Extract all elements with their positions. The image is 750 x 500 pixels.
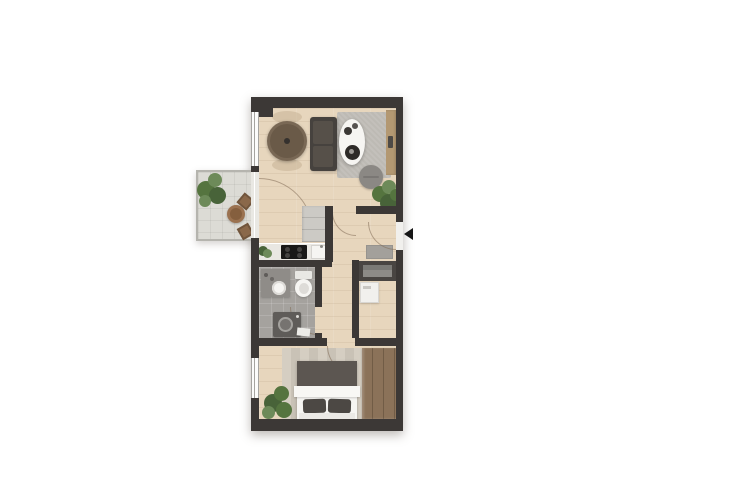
plant-foliage bbox=[263, 249, 272, 258]
balcony-plant bbox=[197, 173, 229, 209]
sideboard-decor bbox=[388, 136, 393, 148]
sofa-cushion bbox=[313, 121, 333, 144]
closet-shelf bbox=[363, 265, 392, 277]
wall bbox=[251, 260, 332, 267]
living-room-window bbox=[251, 112, 259, 166]
burner bbox=[297, 253, 302, 258]
toilet-seat bbox=[299, 283, 309, 294]
bed-pillow bbox=[328, 399, 351, 414]
coffee-table-bowl bbox=[344, 127, 352, 135]
appliance-detail bbox=[363, 286, 371, 289]
vanity-accessory bbox=[264, 273, 268, 277]
dining-table-center bbox=[284, 138, 290, 144]
bedroom-plant bbox=[262, 386, 294, 422]
bedroom-wardrobe bbox=[362, 348, 396, 419]
pouf-crease bbox=[363, 176, 379, 178]
dining-table bbox=[267, 121, 307, 161]
wall bbox=[325, 206, 333, 262]
storage-appliance bbox=[360, 282, 379, 303]
coffee-table-tray bbox=[345, 145, 360, 160]
wall bbox=[315, 267, 322, 307]
balcony-table bbox=[227, 205, 245, 223]
bed-pillow bbox=[303, 399, 326, 414]
vanity-accessory bbox=[270, 277, 274, 281]
wall bbox=[251, 398, 259, 422]
plant-foliage bbox=[262, 406, 275, 419]
kitchen-tall-cabinet bbox=[302, 206, 326, 242]
balcony-sliding-door bbox=[251, 172, 259, 238]
bed bbox=[297, 361, 357, 420]
plant-foliage bbox=[276, 402, 292, 418]
tray-decor bbox=[349, 149, 354, 154]
wall bbox=[251, 338, 327, 346]
entry-closet bbox=[359, 261, 396, 281]
wall bbox=[396, 250, 403, 422]
sofa-cushion bbox=[313, 146, 333, 167]
wall bbox=[352, 260, 359, 338]
faucet bbox=[320, 245, 323, 248]
sofa bbox=[310, 117, 337, 171]
plant-foliage bbox=[209, 187, 226, 204]
toilet-bowl bbox=[295, 279, 312, 297]
burner bbox=[285, 247, 290, 252]
entrance-arrow-icon bbox=[404, 228, 413, 240]
toilet bbox=[294, 271, 313, 297]
wall bbox=[251, 97, 259, 112]
wall bbox=[251, 419, 403, 431]
floor-plan bbox=[0, 0, 750, 500]
bath-towel bbox=[297, 327, 311, 336]
bedroom-window bbox=[251, 358, 259, 398]
burner bbox=[297, 247, 302, 252]
washing-machine-door bbox=[278, 317, 293, 332]
toilet-tank bbox=[295, 271, 312, 279]
balcony-table-top bbox=[230, 208, 242, 220]
kitchen-plant bbox=[257, 244, 273, 260]
entrance-door bbox=[396, 222, 403, 250]
wall bbox=[355, 338, 403, 346]
cooktop bbox=[281, 245, 307, 259]
bathroom-sink bbox=[272, 281, 286, 295]
bed-sheet bbox=[294, 386, 360, 397]
washing-machine-knob bbox=[296, 315, 299, 318]
burner bbox=[285, 253, 290, 258]
wall bbox=[251, 97, 403, 108]
plant-foliage bbox=[199, 195, 211, 207]
plant-foliage bbox=[274, 386, 289, 401]
wall bbox=[356, 206, 403, 214]
coffee-table-bowl bbox=[352, 123, 358, 129]
plant-foliage bbox=[208, 173, 222, 187]
coffee-table bbox=[339, 119, 365, 165]
wall-pillar bbox=[259, 108, 273, 117]
bathroom-vanity bbox=[261, 269, 290, 297]
bed-blanket bbox=[297, 361, 357, 388]
wall bbox=[396, 97, 403, 222]
